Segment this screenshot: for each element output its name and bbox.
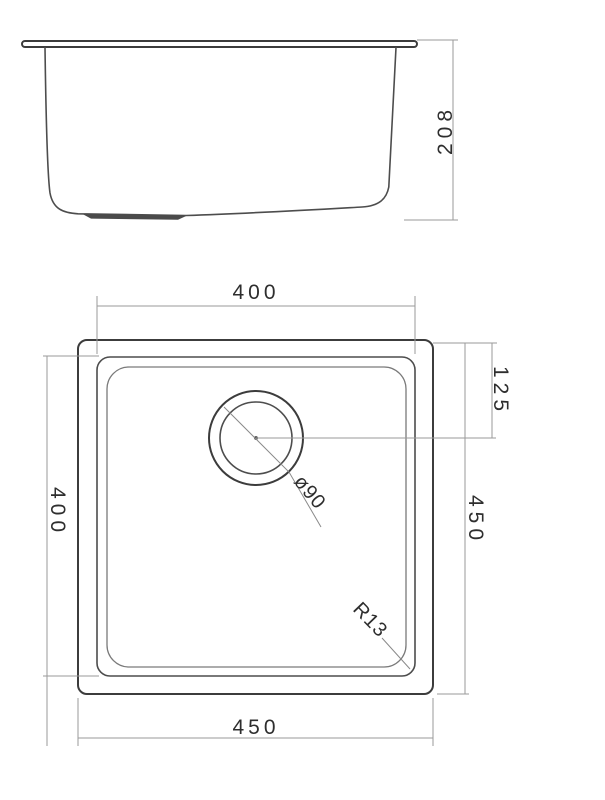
- drain-diameter-leader: [224, 407, 321, 527]
- dimension-overall-length: 450: [433, 343, 497, 694]
- side-view: 208: [22, 40, 458, 220]
- dimension-bowl-width: 400: [97, 281, 415, 354]
- drawing-sheet: 208 ø90 R13: [0, 0, 605, 800]
- drain-diameter-label: ø90: [289, 471, 330, 514]
- depth-dim-label: 208: [434, 105, 457, 155]
- side-view-bowl-outline: [45, 48, 396, 216]
- dimension-bowl-length: 400: [43, 356, 99, 746]
- overall-width-dim-label: 450: [232, 716, 279, 739]
- drain-offset-dim-label: 125: [489, 366, 512, 416]
- dimension-depth: 208: [404, 40, 458, 220]
- plan-view: ø90 R13 400 400: [43, 281, 512, 746]
- corner-radius-label: R13: [348, 598, 391, 642]
- overall-length-dim-label: 450: [464, 495, 487, 545]
- sink-technical-drawing: 208 ø90 R13: [0, 0, 605, 800]
- bowl-width-dim-label: 400: [232, 281, 279, 304]
- side-view-rim: [22, 41, 417, 47]
- annotation-corner-radius: R13: [348, 598, 410, 669]
- bowl-length-dim-label: 400: [46, 487, 69, 537]
- plan-outer-edge: [78, 340, 433, 694]
- dimension-overall-width: 450: [78, 698, 433, 746]
